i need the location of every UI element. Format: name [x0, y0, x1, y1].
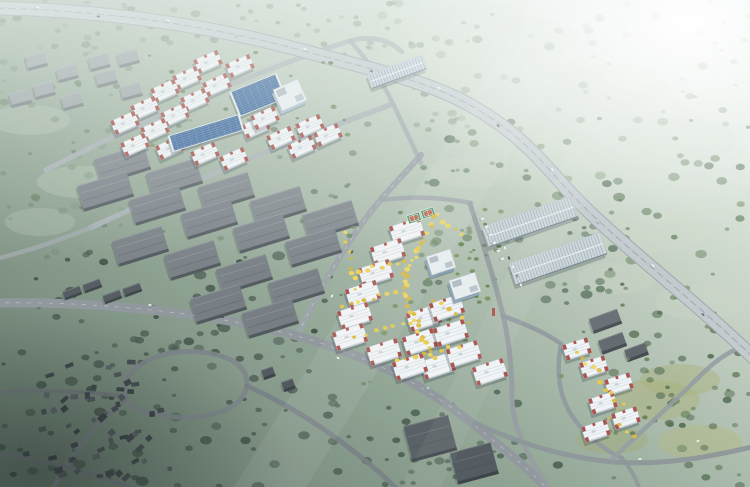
- aerial-render: [0, 0, 750, 487]
- masterplan-scene: [0, 0, 750, 487]
- corner-shadow: [0, 0, 750, 487]
- atmosphere-effects: [0, 0, 750, 487]
